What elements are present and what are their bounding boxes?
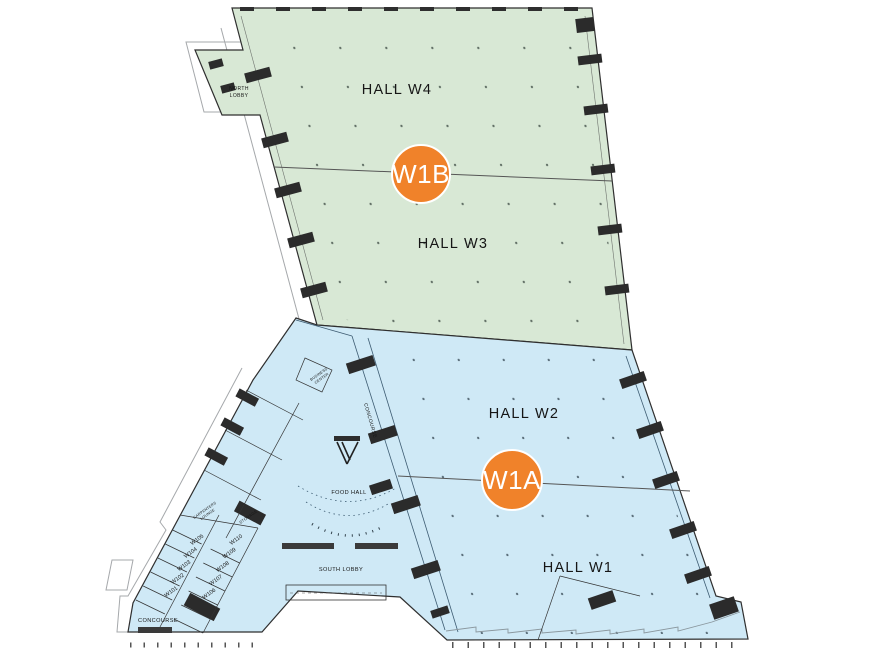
floor-plan-svg: HALL W4 HALL W3 HALL W2 HALL W1 NORTH LO… xyxy=(0,0,872,650)
corner-outline-box xyxy=(106,560,133,590)
north-lobby-label: NORTH LOBBY xyxy=(229,86,249,99)
food-hall-label: FOOD HALL xyxy=(331,490,366,496)
marker-w1a-label: W1A xyxy=(483,465,541,495)
concourse-label-sw: CONCOURSE xyxy=(138,618,178,624)
hall-w1-label: HALL W1 xyxy=(543,560,614,576)
escalator-block xyxy=(334,436,360,441)
south-lobby-label: SOUTH LOBBY xyxy=(319,567,363,573)
north-lobby-label-line1: NORTH xyxy=(229,86,249,92)
floor-plan-map: HALL W4 HALL W3 HALL W2 HALL W1 NORTH LO… xyxy=(0,0,872,650)
hall-w3-label: HALL W3 xyxy=(418,236,489,252)
food-hall-counter xyxy=(282,543,334,549)
marker-w1b[interactable]: W1B xyxy=(392,145,450,203)
food-hall-counter xyxy=(355,543,398,549)
mech-block xyxy=(575,17,595,33)
marker-w1b-label: W1B xyxy=(392,159,450,189)
marker-w1a[interactable]: W1A xyxy=(482,450,542,510)
hall-w4-label: HALL W4 xyxy=(362,82,433,98)
hall-w2-label: HALL W2 xyxy=(489,406,560,422)
north-lobby-label-line2: LOBBY xyxy=(230,93,249,99)
concourse-bar xyxy=(138,627,172,633)
